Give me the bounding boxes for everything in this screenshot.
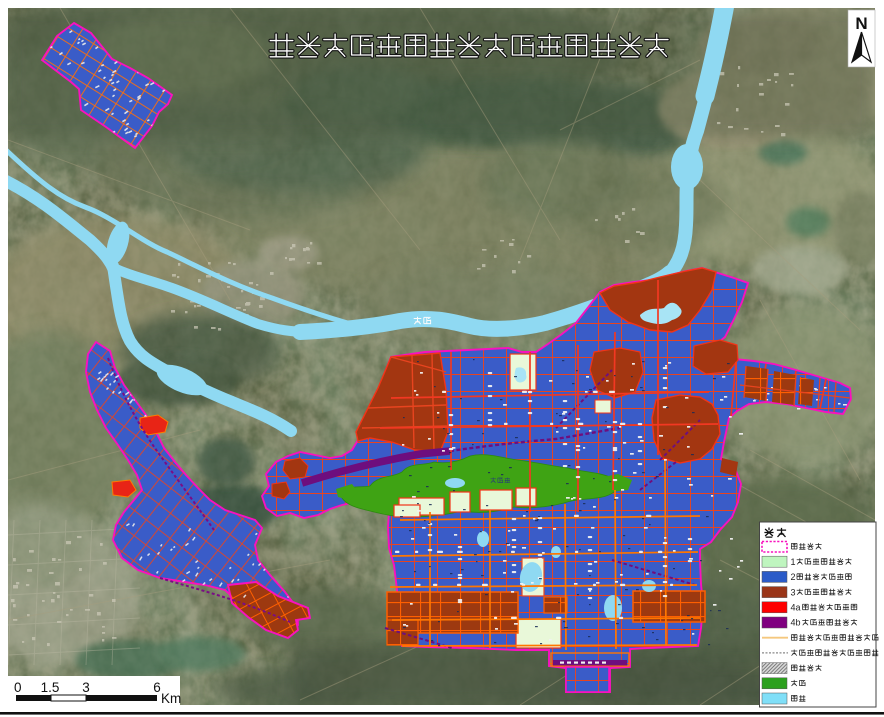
svg-text:1: 1	[791, 557, 796, 567]
svg-text:0: 0	[14, 680, 22, 695]
svg-text:N: N	[855, 14, 867, 33]
svg-text:2: 2	[791, 572, 796, 582]
svg-text:Km: Km	[161, 691, 181, 706]
svg-text:1.5: 1.5	[41, 680, 60, 695]
svg-text:4b: 4b	[791, 618, 801, 628]
svg-text:3: 3	[82, 680, 90, 695]
svg-text:6: 6	[153, 680, 161, 695]
svg-text:3: 3	[791, 587, 796, 597]
svg-text:4a: 4a	[791, 603, 801, 613]
